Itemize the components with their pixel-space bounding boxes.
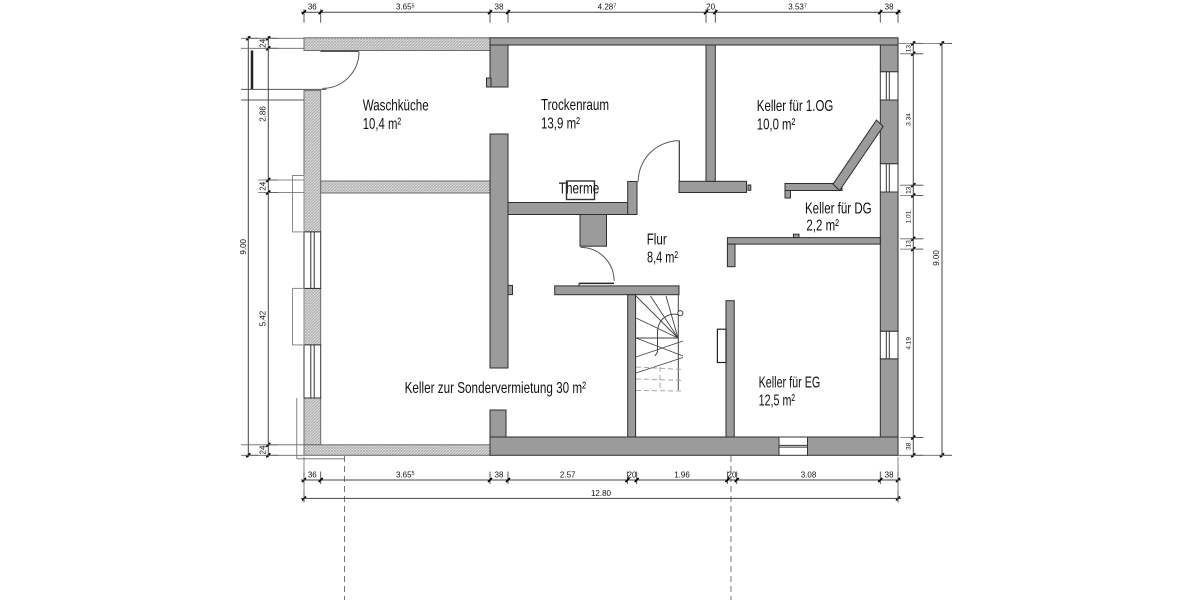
svg-text:5.42: 5.42 [259,310,268,326]
svg-text:4.19: 4.19 [906,337,913,350]
svg-text:10,4 m²: 10,4 m² [363,116,402,133]
svg-text:38: 38 [906,442,913,450]
svg-text:38: 38 [495,3,504,12]
svg-text:13: 13 [906,45,913,53]
svg-text:1.01: 1.01 [906,210,913,223]
svg-text:Trockenraum: Trockenraum [541,97,609,114]
svg-text:Keller für 1.OG: Keller für 1.OG [757,98,834,115]
svg-text:2.86: 2.86 [259,106,268,122]
svg-text:38: 38 [885,3,894,12]
svg-text:2.57: 2.57 [560,470,576,479]
svg-text:13: 13 [906,186,913,194]
svg-text:20: 20 [628,470,637,479]
svg-text:12.80: 12.80 [591,489,612,498]
svg-text:24: 24 [259,445,268,454]
svg-text:1.96: 1.96 [674,470,690,479]
svg-text:Keller für DG: Keller für DG [805,200,872,217]
svg-text:13: 13 [906,240,913,248]
svg-text:12,5 m²: 12,5 m² [759,393,796,410]
svg-text:Flur: Flur [647,231,667,248]
svg-text:Keller für EG: Keller für EG [759,375,821,392]
svg-text:Therme: Therme [559,180,600,197]
svg-text:38: 38 [495,470,504,479]
svg-text:3.08: 3.08 [801,470,817,479]
svg-text:3.34: 3.34 [906,113,913,126]
svg-text:36: 36 [308,470,317,479]
svg-text:9.00: 9.00 [932,250,941,266]
svg-text:Waschküche: Waschküche [363,98,429,115]
svg-text:38: 38 [885,470,894,479]
svg-text:20: 20 [706,3,715,12]
svg-text:24: 24 [259,181,268,190]
svg-text:36: 36 [308,3,317,12]
svg-text:9.00: 9.00 [239,238,248,254]
svg-text:8,4 m²: 8,4 m² [647,250,678,267]
svg-text:Keller zur Sondervermietung 3: Keller zur Sondervermietung 30 m² [405,380,587,397]
svg-text:10,0 m²: 10,0 m² [757,117,796,134]
svg-text:20: 20 [728,470,737,479]
svg-text:13,9 m²: 13,9 m² [541,116,580,133]
svg-text:2,2 m²: 2,2 m² [806,218,839,235]
svg-text:24: 24 [259,38,268,47]
